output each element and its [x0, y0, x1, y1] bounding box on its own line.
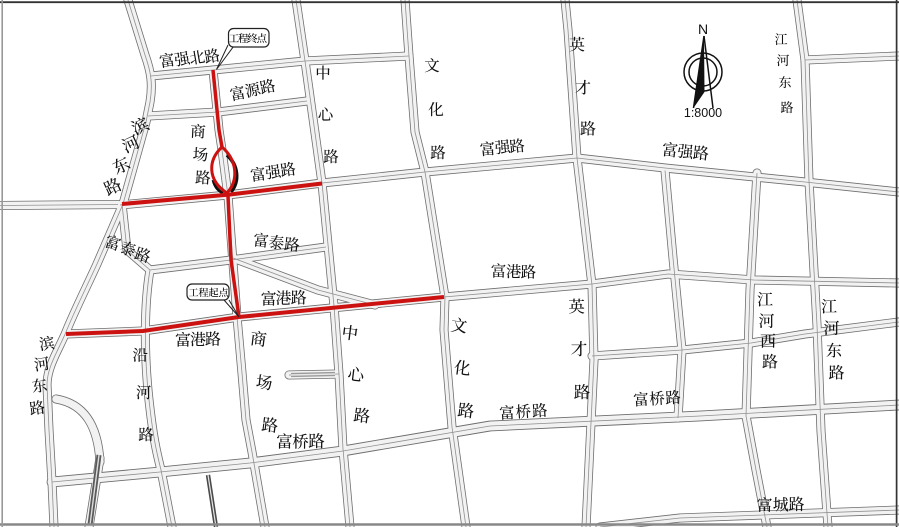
svg-text:N: N [698, 21, 708, 37]
svg-text:1:8000: 1:8000 [684, 106, 722, 120]
